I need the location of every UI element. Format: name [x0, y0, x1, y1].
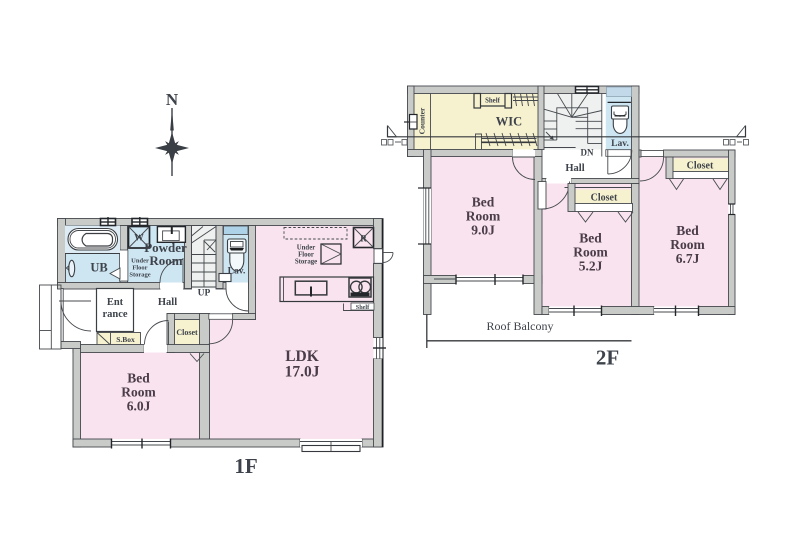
svg-text:UP: UP [198, 289, 211, 299]
svg-text:Hall: Hall [565, 163, 584, 174]
svg-text:2F: 2F [596, 346, 619, 370]
svg-text:Lav.: Lav. [228, 267, 246, 277]
svg-text:S.Box: S.Box [116, 335, 135, 344]
svg-text:W: W [134, 234, 144, 244]
svg-text:Room: Room [670, 237, 705, 252]
svg-text:5.2J: 5.2J [579, 259, 603, 274]
svg-text:Bed: Bed [472, 195, 495, 210]
svg-text:DN: DN [581, 148, 594, 158]
svg-text:Room: Room [573, 245, 608, 260]
svg-text:Closet: Closet [176, 328, 198, 337]
svg-text:Floor: Floor [298, 252, 314, 259]
svg-text:Floor: Floor [132, 265, 147, 272]
svg-text:Under: Under [297, 245, 316, 252]
svg-text:Closet: Closet [591, 193, 618, 204]
svg-text:Room: Room [121, 385, 156, 400]
svg-text:Room: Room [149, 253, 182, 268]
svg-text:Counter: Counter [418, 107, 427, 134]
svg-text:17.0J: 17.0J [285, 364, 320, 381]
svg-text:Storage: Storage [129, 272, 150, 279]
svg-text:WIC: WIC [496, 115, 522, 129]
svg-text:6.0J: 6.0J [127, 399, 151, 414]
svg-text:Under: Under [131, 258, 149, 265]
svg-text:6.7J: 6.7J [676, 251, 700, 266]
svg-text:Lav.: Lav. [611, 139, 629, 149]
svg-text:Shelf: Shelf [356, 304, 370, 311]
svg-text:Shelf: Shelf [485, 98, 500, 105]
svg-text:N: N [166, 90, 179, 109]
svg-text:R: R [360, 234, 367, 244]
svg-text:Bed: Bed [127, 371, 150, 386]
svg-text:Roof Balcony: Roof Balcony [487, 319, 554, 333]
svg-text:1F: 1F [234, 454, 257, 478]
svg-text:Bed: Bed [676, 223, 699, 238]
svg-text:rance: rance [102, 309, 127, 320]
svg-text:LDK: LDK [285, 348, 319, 365]
svg-text:Storage: Storage [295, 259, 317, 266]
svg-text:Hall: Hall [158, 297, 177, 308]
svg-text:UB: UB [90, 261, 107, 275]
svg-text:Bed: Bed [579, 231, 602, 246]
svg-text:Closet: Closet [687, 161, 714, 172]
svg-text:Ent: Ent [107, 297, 124, 308]
svg-text:9.0J: 9.0J [471, 223, 495, 238]
svg-text:Room: Room [466, 209, 501, 224]
